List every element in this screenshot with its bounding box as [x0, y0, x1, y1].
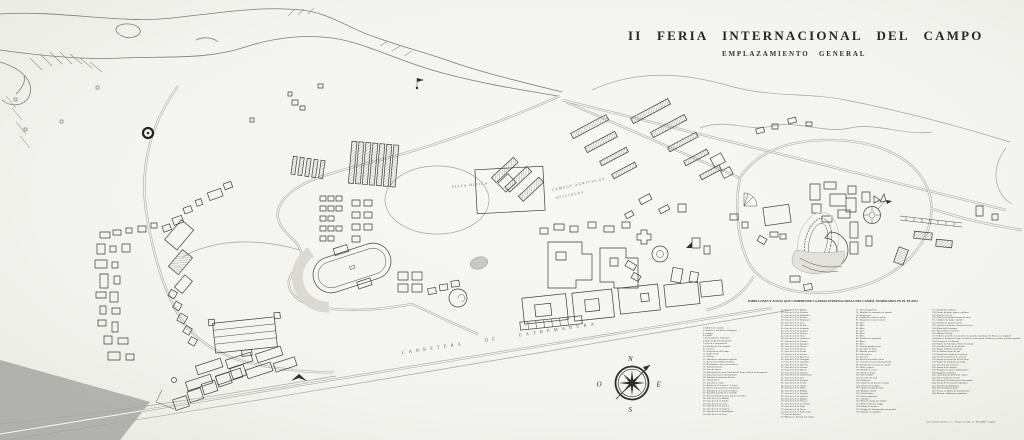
- river: [0, 8, 562, 105]
- legend-column-4: 117.-Granja de avicultura 118.-Parque de…: [932, 309, 1022, 395]
- entrance-marker: [291, 374, 307, 381]
- printer-imprint: Artes Gráficas MAG, S. A. - Duque de Alb…: [926, 421, 996, 424]
- official-fields-label-line1: CAMPOS AGRICOLAS: [551, 177, 605, 192]
- riding-track-label: PISTA HIPICA: [452, 181, 489, 189]
- map-subtitle: EMPLAZAMIENTO GENERAL: [722, 50, 866, 58]
- scattered-marks: [143, 78, 424, 138]
- road-label: CARRETERA DE EXTREMADURA: [401, 321, 598, 355]
- exhibition-sheds-strip: [571, 99, 734, 219]
- map-canvas: N E S O CARRETERA DE EXTREMADURA PISTA H…: [0, 0, 1024, 440]
- village-buildings: [95, 181, 239, 360]
- stadium: [290, 229, 400, 314]
- riding-track-oval: [385, 166, 489, 234]
- compass-east-label: E: [656, 381, 662, 389]
- legend-header: PABELLONES Y ZONAS QUE COMPRENDE LA FERI…: [748, 300, 992, 303]
- striped-enclosure: [208, 312, 284, 359]
- parking-rows: [291, 141, 399, 242]
- compass-south-label: S: [629, 406, 633, 414]
- terraced-lake: [792, 250, 844, 273]
- official-fields-label-line2: OFICIALES: [555, 190, 584, 200]
- legend-column-1: 1.-Edificio de entrada 2.-Oficinas y Tel…: [703, 327, 780, 416]
- map-title: II FERIA INTERNACIONAL DEL CAMPO: [628, 28, 984, 44]
- legend-column-2: 35.-Casa de la P. de Burgos 36.-Casa de …: [781, 309, 858, 419]
- central-compound: [540, 214, 748, 288]
- southwest-pavilion-rows: [156, 346, 307, 410]
- pond: [469, 255, 489, 271]
- amphitheater-fan: [744, 193, 757, 206]
- compass-north-label: N: [627, 355, 633, 363]
- south-pavilion-blocks: [398, 255, 723, 330]
- legend-column-3: 77.-Casa del ganadero 78.-Depósito de se…: [856, 309, 933, 414]
- map-labels: CARRETERA DE EXTREMADURA PISTA HIPICA CA…: [401, 177, 605, 355]
- paper-washes: [0, 360, 150, 440]
- east-cluster: [744, 117, 998, 291]
- compass-west-label: O: [597, 381, 602, 389]
- slope-hatching: [6, 52, 102, 148]
- compass-rose: N E S O: [597, 355, 662, 414]
